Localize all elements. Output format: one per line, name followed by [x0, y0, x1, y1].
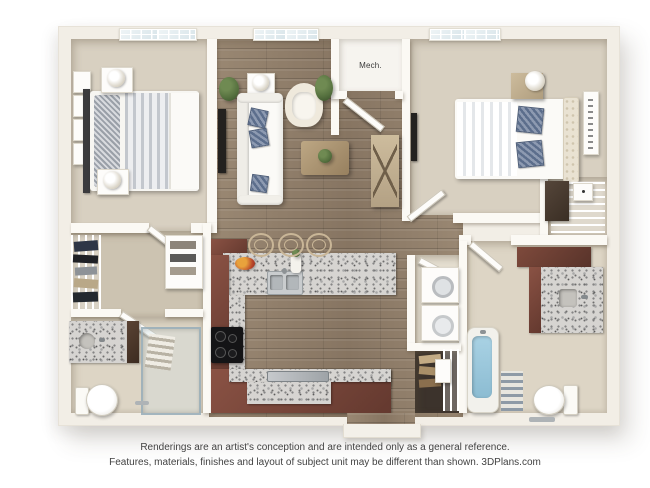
wall-bedroom1-living: [207, 39, 217, 231]
sofa-pillow: [247, 107, 268, 128]
coffee-table: [301, 141, 349, 175]
bathtub: [467, 327, 499, 413]
window-pane: [255, 30, 285, 39]
island-counter-inset: [247, 382, 331, 404]
closet-dresser: [545, 181, 569, 221]
wall-hall-bedroom2: [402, 39, 410, 221]
bed2-pillow: [516, 140, 545, 169]
burner: [228, 349, 237, 358]
console-x-leg: [373, 143, 397, 199]
shower-mat: [145, 333, 175, 370]
vanity-faucet: [581, 295, 588, 299]
sofa-back: [237, 93, 249, 205]
burner: [228, 334, 237, 343]
bed1-duvet-foot: [169, 93, 199, 189]
window-pane: [466, 30, 499, 39]
bath2-towel: [529, 417, 555, 422]
bar-stool: [306, 233, 332, 257]
mech-closet-label: Mech.: [359, 61, 382, 70]
potted-plant: [219, 77, 239, 101]
washer-door: [432, 276, 454, 298]
burner: [215, 331, 226, 342]
sofa-arm: [237, 195, 283, 205]
sink-basin: [270, 275, 283, 290]
bedroom2-window: [429, 28, 501, 41]
living-room-window: [253, 28, 319, 41]
vanity-sink: [79, 333, 95, 349]
sofa-pillow: [250, 174, 269, 193]
mech-closet: Mech.: [339, 39, 402, 91]
tv-console-living: [218, 109, 226, 173]
bath1-vanity-counter: [69, 321, 127, 363]
toilet2-bowl: [533, 385, 565, 415]
table-centerpiece: [318, 149, 332, 163]
hanging-clothes: [73, 292, 98, 303]
window-pane: [121, 30, 157, 39]
hanging-clothes: [74, 278, 99, 289]
disclaimer-line2: Features, materials, finishes and layout…: [0, 455, 650, 470]
hanging-clothes: [73, 254, 98, 263]
closet1-rack-left: [71, 235, 101, 309]
bed2-headboard: [563, 97, 579, 183]
sink-faucet: [282, 268, 287, 274]
console-table: [371, 135, 399, 207]
vanity-sink: [559, 289, 577, 307]
bath1-vanity-cabinet: [127, 321, 139, 363]
nightstand-lamp: [525, 71, 545, 91]
bathtub-water: [472, 336, 492, 398]
window-pane: [431, 30, 464, 39]
wall-laundry-west: [407, 255, 415, 347]
nightstand-lamp: [103, 171, 121, 189]
closet2-organizer: [435, 359, 451, 383]
bed2-duvet: [457, 102, 517, 176]
bath2-rug: [501, 371, 523, 411]
hanging-clothes: [74, 240, 99, 252]
dryer-door: [432, 315, 454, 337]
bar-stool: [278, 233, 304, 257]
bed-2: [455, 97, 577, 181]
bed1-headboard: [83, 89, 90, 193]
toilet2-tank: [563, 385, 578, 415]
bath2-vanity-counter: [541, 267, 603, 333]
tv-bedroom2: [411, 113, 417, 161]
patio-door-threshold: [347, 413, 415, 424]
potted-palm: [315, 75, 333, 101]
bed2-pillow: [516, 106, 545, 135]
wall-mech-south-right: [395, 91, 403, 99]
bedroom2-wall-art: [583, 91, 599, 155]
wall-bedroom2-south: [453, 213, 548, 223]
cooktop-range: [211, 327, 243, 363]
shelf-items: [170, 241, 196, 249]
flower-vase: [291, 255, 301, 273]
vanity-faucet: [99, 338, 105, 342]
sink-basin: [286, 275, 299, 290]
closet1-shelf-unit: [165, 235, 203, 289]
toilet1-bowl: [86, 384, 118, 416]
wall-bathroom2-north-right: [511, 235, 607, 245]
wall-bathroom2-west: [459, 241, 467, 413]
shelf-items: [170, 267, 196, 275]
safe-box: [573, 183, 593, 201]
wall-bedroom1-south-left: [71, 223, 149, 233]
bed1-blanket: [125, 93, 169, 189]
dryer: [421, 305, 459, 341]
fruit-bowl: [235, 257, 255, 270]
bedroom1-window: [119, 28, 197, 41]
sofa: [237, 93, 283, 205]
table-lamp: [252, 74, 269, 91]
kitchen-sink: [267, 271, 303, 295]
sofa-pillow: [249, 128, 270, 149]
wall-mech-south-left: [331, 91, 347, 99]
window-pane: [159, 30, 195, 39]
shower-door-handle: [135, 401, 149, 405]
window-pane: [287, 30, 317, 39]
wall-closet1-kitchen: [203, 223, 211, 413]
disclaimer: Renderings are an artist's conception an…: [0, 440, 650, 470]
armchair-seat: [292, 92, 316, 120]
baking-sheet: [267, 371, 329, 382]
wall-closet1-bath1-left: [71, 309, 121, 317]
shelf-items: [170, 254, 196, 262]
burner: [215, 347, 226, 358]
patio-step: [343, 424, 421, 438]
hanging-clothes: [75, 266, 97, 275]
apartment-plan: Mech.: [58, 26, 620, 426]
wall-closet1-bath1-right: [165, 309, 203, 317]
sofa-arm: [237, 93, 283, 103]
bar-stool: [248, 233, 274, 257]
bath1-shower: [141, 327, 201, 415]
nightstand-lamp: [107, 69, 125, 87]
art-script-text: [588, 97, 593, 149]
washer: [421, 267, 459, 303]
disclaimer-line1: Renderings are an artist's conception an…: [0, 440, 650, 455]
tub-faucet: [480, 330, 486, 334]
safe-dial: [582, 190, 585, 193]
bath2-upper-cabinet: [517, 247, 591, 267]
bath2-vanity-cabinet: [529, 267, 541, 333]
floorplan-image: Mech.: [0, 0, 650, 488]
